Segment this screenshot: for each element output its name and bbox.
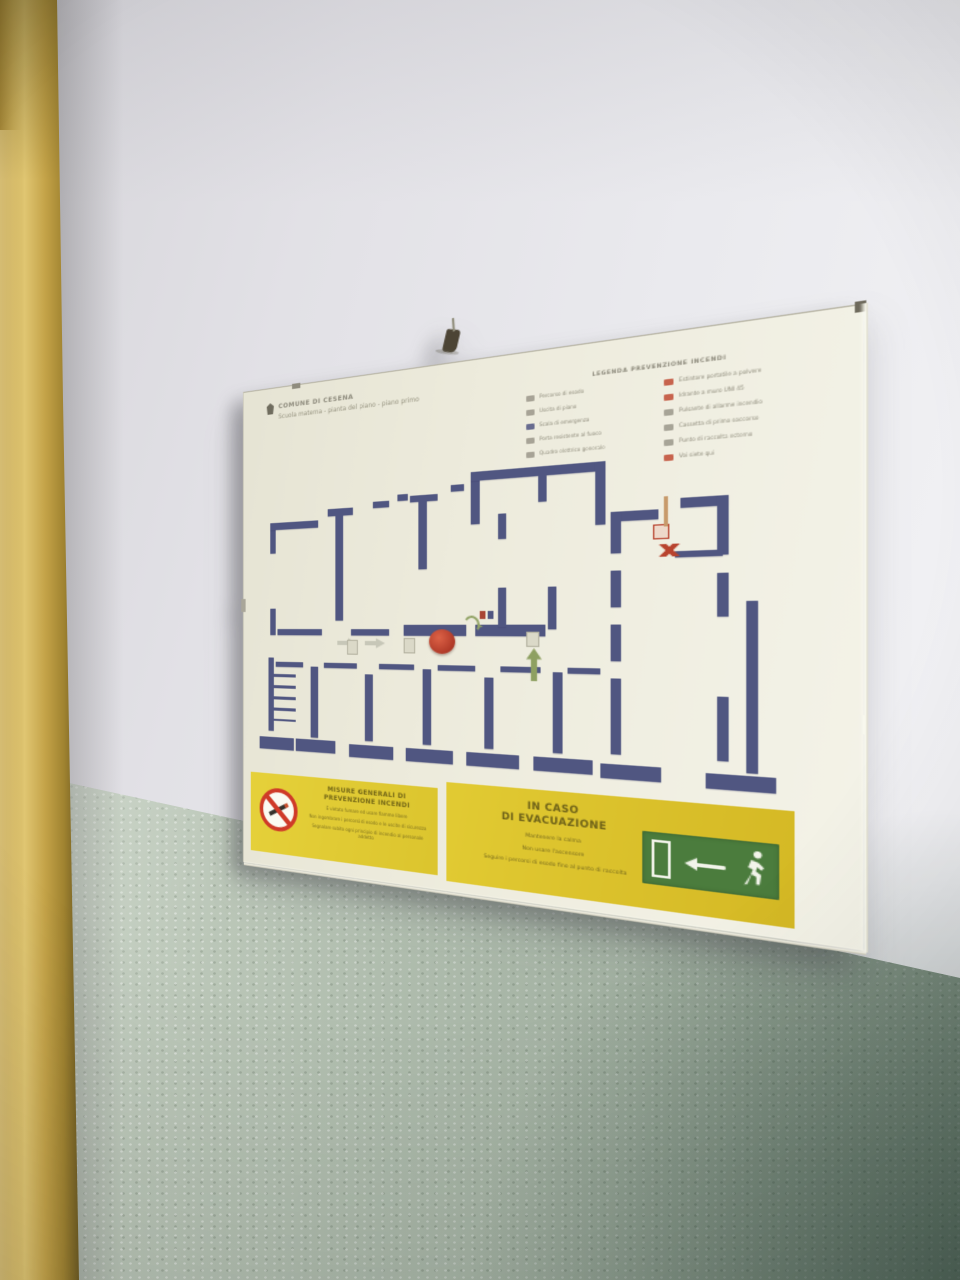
plan-wall: [706, 773, 777, 794]
legend-label: Estintore portatile a polvere: [679, 367, 762, 384]
plan-wall: [296, 738, 336, 753]
plan-wall: [335, 515, 343, 621]
tan-pipe-symbol: [664, 496, 668, 526]
plan-wall: [717, 573, 729, 617]
red-x-symbol: [658, 543, 680, 556]
light-box-symbol: [347, 640, 358, 655]
plan-wall: [418, 500, 427, 569]
plan-wall: [349, 744, 393, 760]
plan-wall: [611, 625, 621, 662]
plan-wall: [277, 629, 321, 635]
legend-symbol-icon: [664, 408, 674, 415]
plan-wall: [406, 748, 453, 765]
plan-wall: [611, 678, 621, 755]
legend-label: Cassetta di primo soccorso: [679, 414, 759, 429]
legend-label: Punto di raccolta esterno: [679, 431, 753, 444]
plan-wall: [675, 550, 723, 558]
plan-wall: [379, 664, 414, 670]
plan-wall: [373, 501, 389, 509]
legend-label: Scala di emergenza: [539, 416, 589, 428]
plan-wall: [276, 662, 303, 668]
glass-clip-icon: [241, 599, 245, 612]
legend-item: Quadro elettrico generale: [526, 440, 650, 458]
plan-wall: [451, 484, 464, 492]
legend-label: Quadro elettrico generale: [539, 444, 605, 456]
plan-wall: [568, 668, 601, 675]
prohibition-bar-icon: [265, 794, 291, 826]
glass-edge-highlight: [860, 303, 868, 953]
legend-label: Idrante a muro UNI 45: [679, 384, 744, 398]
legend-label: Porta resistente al fuoco: [539, 430, 601, 442]
plan-wall: [466, 752, 519, 770]
legend-symbol-icon: [526, 409, 534, 416]
plan-wall: [260, 736, 294, 751]
plan-wall: [746, 601, 758, 774]
municipal-crest-icon: [267, 403, 274, 415]
plan-wall: [553, 672, 563, 753]
plan-wall: [611, 511, 621, 553]
plan-wall: [270, 520, 318, 530]
exit-door-icon: [652, 839, 671, 879]
plan-wall: [351, 629, 389, 636]
arrow-right-symbol: [365, 638, 385, 649]
legend-label: Uscita di piano: [539, 403, 576, 413]
light-box-symbol: [404, 638, 416, 654]
fire-prevention-notice: MISURE GENERALI DI PREVENZIONE INCENDI È…: [251, 772, 438, 876]
plan-wall: [438, 665, 476, 671]
legend-symbol-icon: [664, 393, 674, 400]
legend-symbol-icon: [526, 437, 534, 444]
plan-wall: [397, 494, 407, 501]
plan-wall: [311, 667, 319, 738]
plan-wall: [533, 756, 592, 775]
plan-wall: [324, 663, 357, 669]
legend-symbol-icon: [526, 451, 534, 458]
emergency-exit-sign: [642, 831, 779, 900]
legend-symbol-icon: [664, 378, 674, 385]
plan-wall: [600, 763, 661, 782]
evacuation-poster: COMUNE DI CESENA Scuola materna - pianta…: [243, 303, 863, 950]
plan-wall: [484, 677, 493, 749]
legend-symbol-icon: [526, 423, 534, 430]
legend-symbol-icon: [664, 423, 674, 430]
plan-wall: [611, 570, 621, 607]
fire-prevention-text: MISURE GENERALI DI PREVENZIONE INCENDI È…: [307, 784, 429, 848]
red-badge-symbol: [429, 629, 455, 654]
floor-plan: [258, 445, 770, 804]
plan-wall: [538, 475, 546, 502]
poster-board: COMUNE DI CESENA Scuola materna - pianta…: [243, 303, 863, 950]
legend-col-right: Estintore portatile a polvereIdrante a m…: [664, 361, 807, 460]
plan-wall: [423, 669, 432, 745]
plan-wall: [498, 513, 506, 539]
mini-glyphs-symbol: [480, 611, 498, 619]
hallway-photo: COMUNE DI CESENA Scuola materna - pianta…: [0, 0, 960, 1280]
left-arrow-icon: [678, 857, 726, 873]
plan-wall: [270, 609, 275, 636]
plan-wall: [595, 461, 605, 525]
legend-symbol-icon: [664, 438, 674, 445]
legend-label: Pulsante di allarme incendio: [679, 398, 762, 414]
plan-wall: [717, 495, 729, 555]
plan-wall: [498, 588, 506, 627]
plan-wall: [548, 587, 557, 630]
running-man-icon: [734, 845, 773, 893]
legend-label: Percorso di esodo: [539, 388, 584, 400]
plan-wall: [717, 697, 729, 762]
legend-symbol-icon: [526, 395, 534, 402]
stairs-symbol: [274, 674, 296, 722]
plan-wall: [365, 674, 373, 741]
no-smoking-icon: [260, 787, 298, 834]
up-arrow-symbol: [526, 648, 542, 681]
glass-clip-icon: [292, 383, 300, 389]
light-box-symbol: [526, 632, 539, 647]
poster-header: COMUNE DI CESENA Scuola materna - pianta…: [267, 383, 419, 421]
